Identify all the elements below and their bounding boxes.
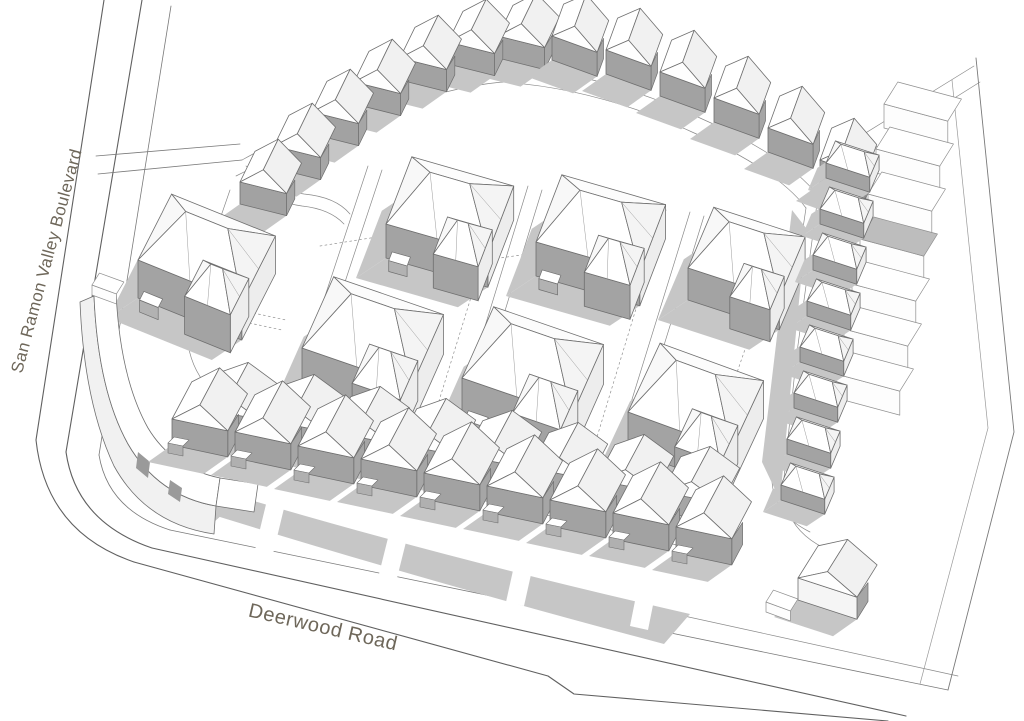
corner-lot-building — [774, 539, 877, 636]
detached-house — [506, 175, 666, 326]
site-plan-svg — [0, 0, 1024, 721]
detached-house — [356, 157, 514, 307]
site-plan-canvas: San Ramon Valley Boulevard Deerwood Road — [0, 0, 1024, 721]
